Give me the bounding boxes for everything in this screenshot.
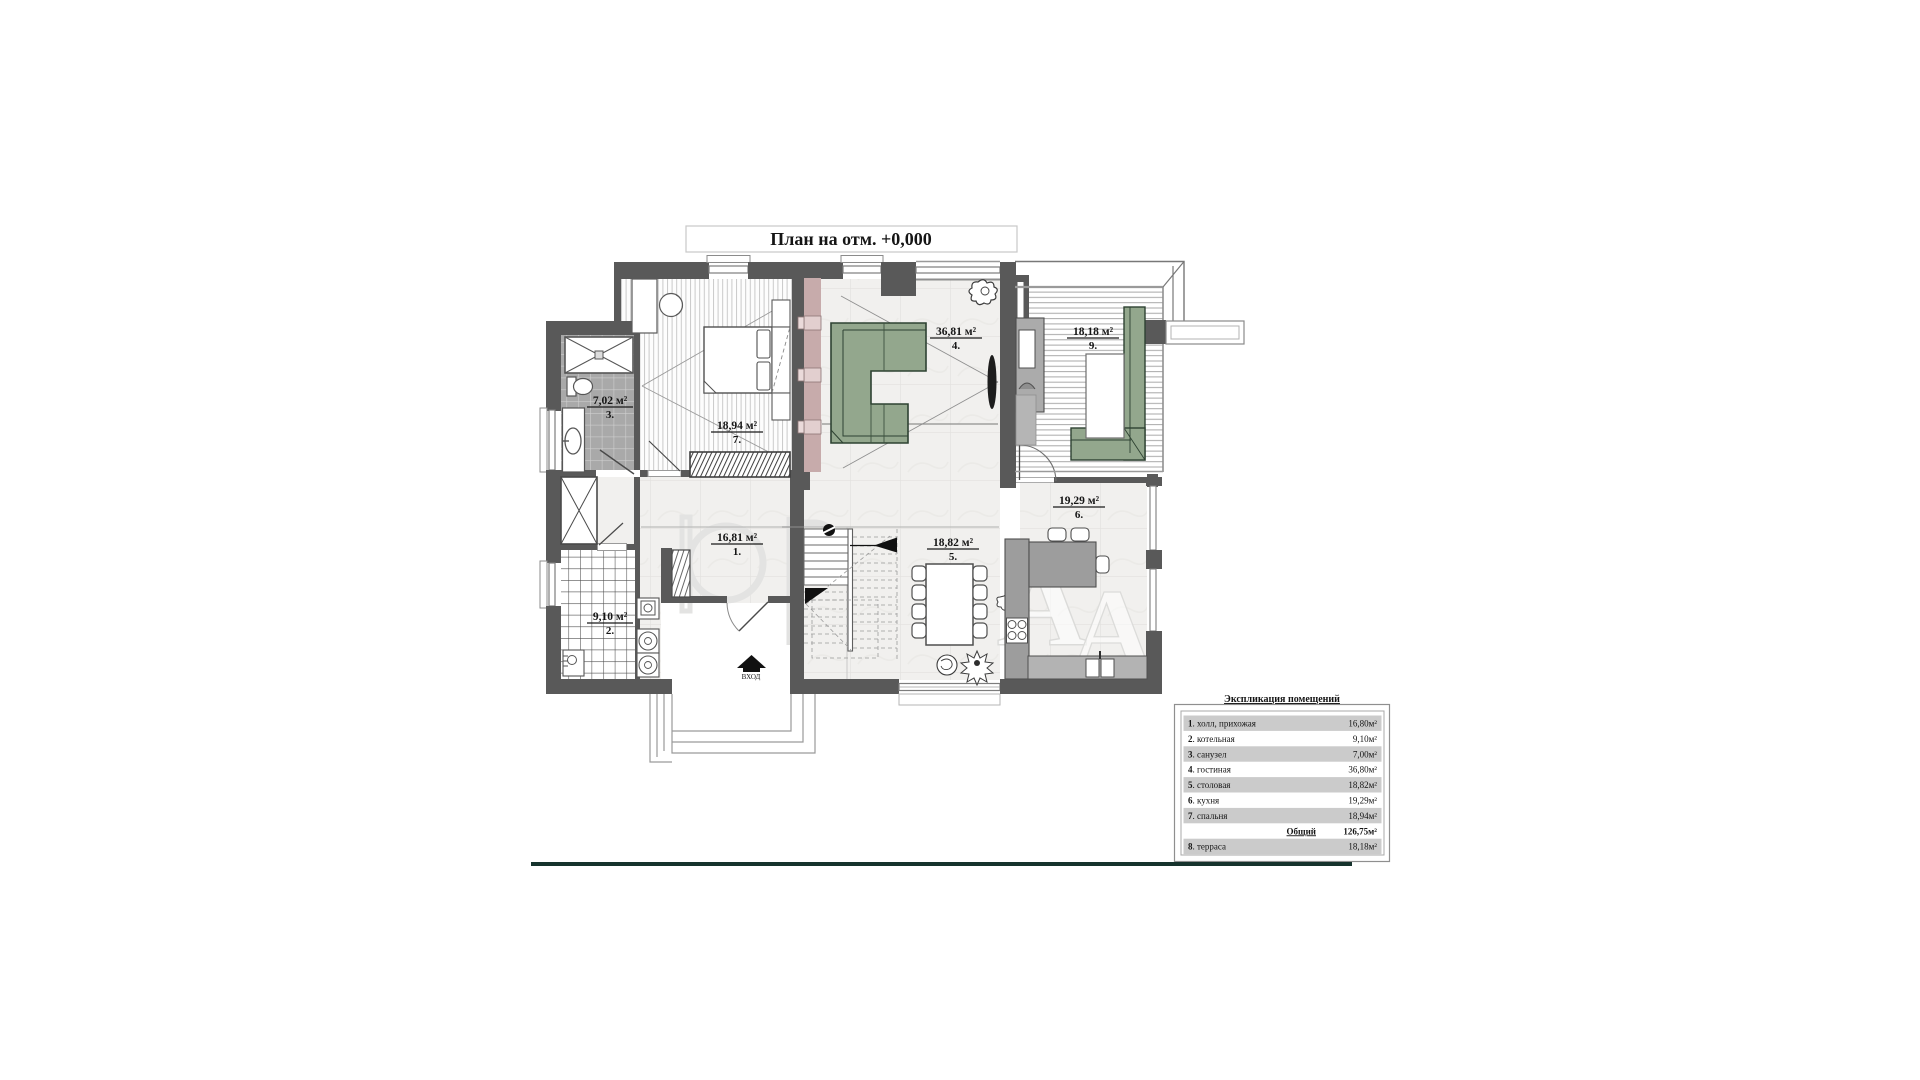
svg-text:18,94м²: 18,94м² xyxy=(1348,811,1377,821)
svg-text:7. спальня: 7. спальня xyxy=(1188,811,1227,821)
svg-text:19,29 м²: 19,29 м² xyxy=(1059,495,1100,507)
svg-text:16,81 м²: 16,81 м² xyxy=(717,532,758,544)
svg-text:1. холл, прихожая: 1. холл, прихожая xyxy=(1188,719,1256,729)
svg-text:18,94 м²: 18,94 м² xyxy=(717,420,758,432)
svg-text:6.: 6. xyxy=(1075,509,1084,521)
svg-text:7.: 7. xyxy=(733,434,742,446)
svg-text:3. санузел: 3. санузел xyxy=(1188,749,1227,759)
svg-text:4. гостиная: 4. гостиная xyxy=(1188,765,1231,775)
svg-text:2.: 2. xyxy=(606,625,615,637)
svg-text:5. столовая: 5. столовая xyxy=(1188,780,1230,790)
svg-text:3.: 3. xyxy=(606,409,615,421)
svg-text:18,18м²: 18,18м² xyxy=(1348,842,1377,852)
svg-text:Экспликация помещений: Экспликация помещений xyxy=(1224,694,1340,705)
svg-text:План на отм. +0,000: План на отм. +0,000 xyxy=(770,229,931,249)
svg-text:1.: 1. xyxy=(733,546,742,558)
svg-text:4.: 4. xyxy=(952,340,961,352)
svg-text:6. кухня: 6. кухня xyxy=(1188,796,1219,806)
svg-text:36,80м²: 36,80м² xyxy=(1348,765,1377,775)
svg-text:ВХОД: ВХОД xyxy=(742,673,761,681)
svg-text:126,75м²: 126,75м² xyxy=(1343,826,1377,836)
svg-text:5.: 5. xyxy=(949,551,958,563)
svg-text:19,29м²: 19,29м² xyxy=(1348,796,1377,806)
svg-text:8. терраса: 8. терраса xyxy=(1188,842,1226,852)
svg-text:9,10 м²: 9,10 м² xyxy=(593,611,628,623)
svg-text:9,10м²: 9,10м² xyxy=(1353,734,1377,744)
svg-text:7,02 м²: 7,02 м² xyxy=(593,395,628,407)
svg-text:18,18 м²: 18,18 м² xyxy=(1073,326,1114,338)
svg-text:18,82 м²: 18,82 м² xyxy=(933,537,974,549)
svg-text:18,82м²: 18,82м² xyxy=(1348,780,1377,790)
svg-text:9.: 9. xyxy=(1089,340,1098,352)
svg-text:16,80м²: 16,80м² xyxy=(1348,719,1377,729)
svg-text:Общий: Общий xyxy=(1287,826,1316,836)
svg-text:2. котельная: 2. котельная xyxy=(1188,734,1235,744)
svg-text:7,00м²: 7,00м² xyxy=(1353,749,1377,759)
svg-text:36,81 м²: 36,81 м² xyxy=(936,326,977,338)
